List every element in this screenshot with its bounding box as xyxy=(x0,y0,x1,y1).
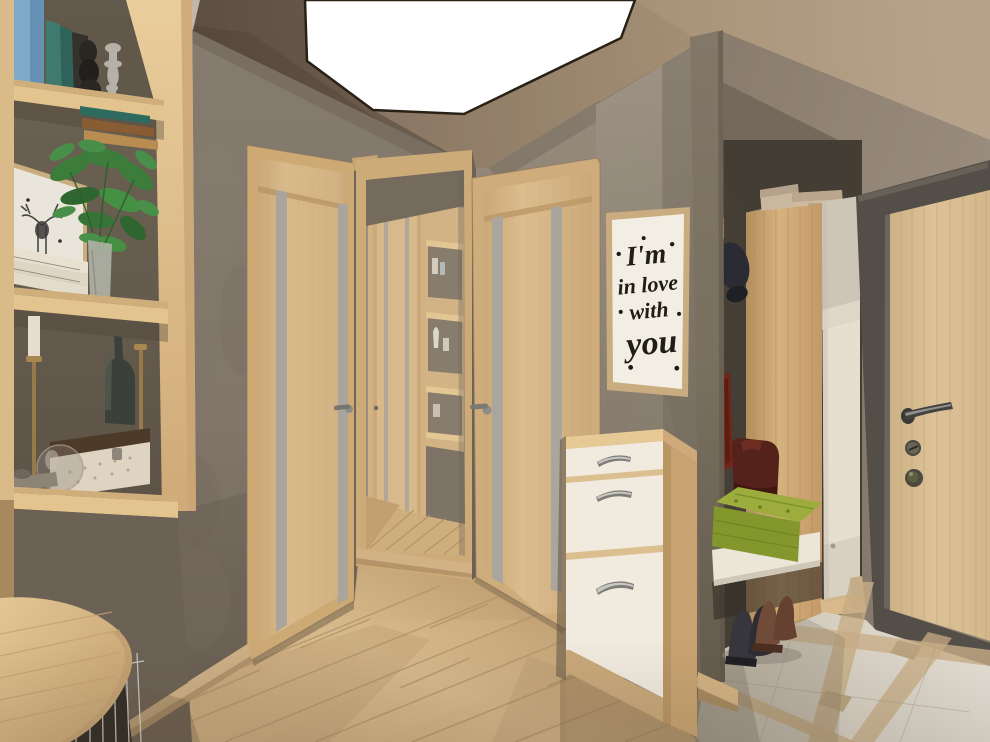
svg-text:I'm: I'm xyxy=(624,238,668,272)
svg-text:you: you xyxy=(621,323,679,365)
svg-text:in love: in love xyxy=(616,269,679,299)
svg-text:with: with xyxy=(628,296,669,324)
